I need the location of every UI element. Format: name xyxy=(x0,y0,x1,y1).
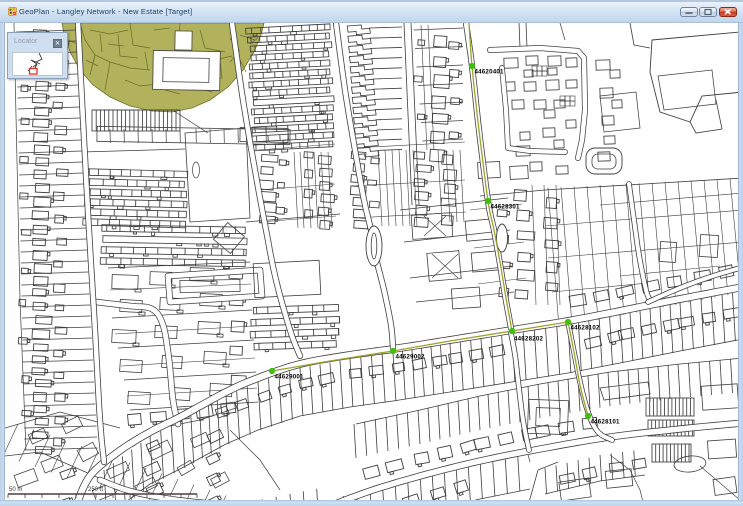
svg-text:44628301: 44628301 xyxy=(491,204,520,211)
svg-text:50 m: 50 m xyxy=(9,487,22,493)
svg-text:44629001: 44629001 xyxy=(275,374,304,381)
svg-text:44620401: 44620401 xyxy=(475,69,504,76)
svg-text:44628102: 44628102 xyxy=(571,325,600,332)
svg-text:250 ft: 250 ft xyxy=(88,487,103,493)
svg-text:44628202: 44628202 xyxy=(514,336,543,343)
svg-text:44628101: 44628101 xyxy=(591,419,620,426)
svg-text:44629002: 44629002 xyxy=(396,354,425,361)
